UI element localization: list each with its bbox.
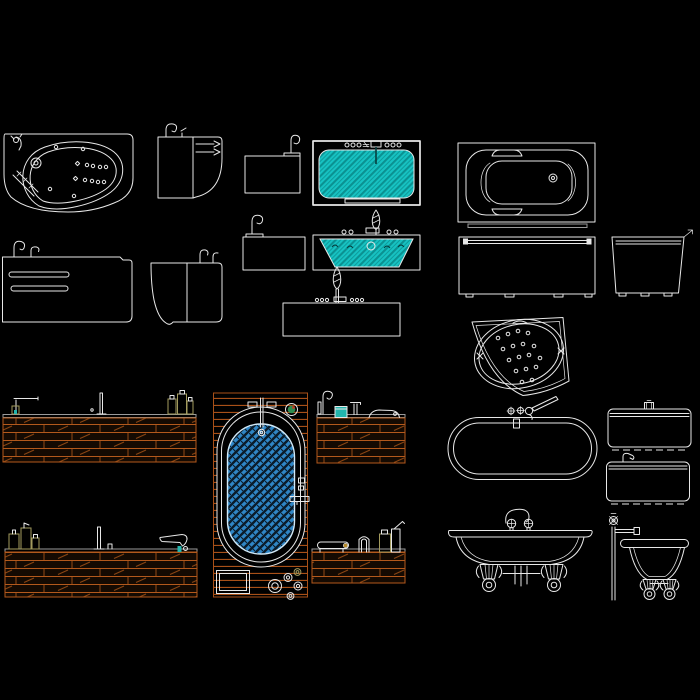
wood-panel <box>312 552 405 583</box>
bathtub-blocks-drawing <box>0 0 700 700</box>
cad-canvas[interactable] <box>0 0 700 700</box>
whirlpool-tub-plan[interactable] <box>313 141 420 205</box>
water-fill <box>320 239 413 267</box>
wood-panel <box>317 418 405 463</box>
water-fill <box>228 424 295 554</box>
deck-tub-plan[interactable] <box>214 393 310 599</box>
wood-panel <box>5 552 197 597</box>
water-fill <box>319 150 414 198</box>
wood-panel <box>3 418 196 462</box>
